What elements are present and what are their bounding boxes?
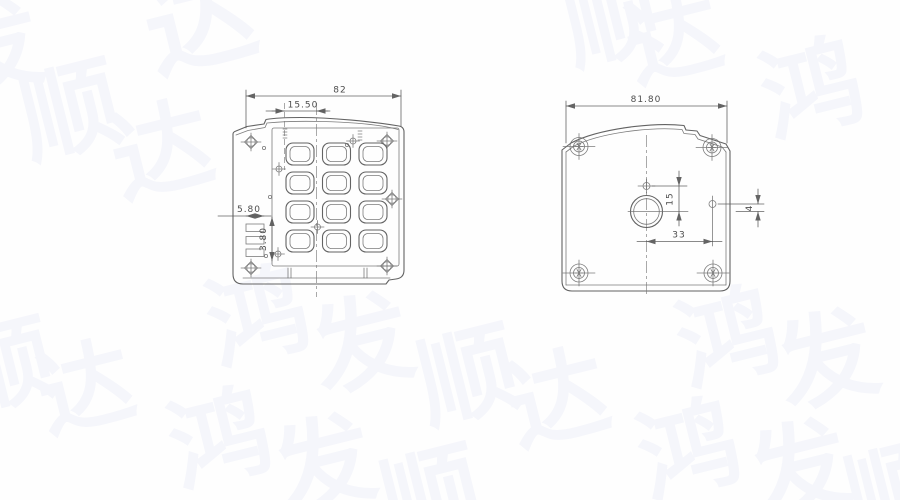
dim-hole-horizontal: 33 <box>637 231 722 242</box>
keypad-front-view: 82 15.50 5.80 3.80 <box>218 86 404 298</box>
back-enclosure-inner-top <box>566 129 726 152</box>
drawing-canvas: 达发顺达顺达鸿鸿发顺达鸿发顺达鸿发顺鸿发顺 <box>0 0 900 500</box>
small-hole-right <box>709 196 716 246</box>
engraving-marks-top <box>283 129 362 140</box>
dim-back-overall-width-label: 81.80 <box>631 95 662 105</box>
keypad-buttons <box>286 143 387 252</box>
enclosure-back-view: 81.80 15 4 <box>562 95 764 297</box>
dim-button-spacing: 15.50 <box>266 101 330 112</box>
dim-led-pitch-label: 3.80 <box>259 227 269 251</box>
engraving-marks-bottom <box>288 268 367 278</box>
dim-led-offset-label: 5.80 <box>237 205 261 215</box>
dim-front-overall-width-label: 82 <box>333 86 346 96</box>
dim-led-offset: 5.80 <box>218 205 271 216</box>
dim-hole-offset-label: 4 <box>745 205 755 212</box>
dim-hole-vertical-label: 15 <box>666 192 676 205</box>
dim-hole-offset: 4 <box>718 189 764 227</box>
technical-drawing-svg: 82 15.50 5.80 3.80 <box>0 0 900 500</box>
dim-hole-horizontal-label: 33 <box>672 231 685 241</box>
screw-bosses <box>563 134 729 287</box>
dim-button-spacing-label: 15.50 <box>288 101 319 111</box>
